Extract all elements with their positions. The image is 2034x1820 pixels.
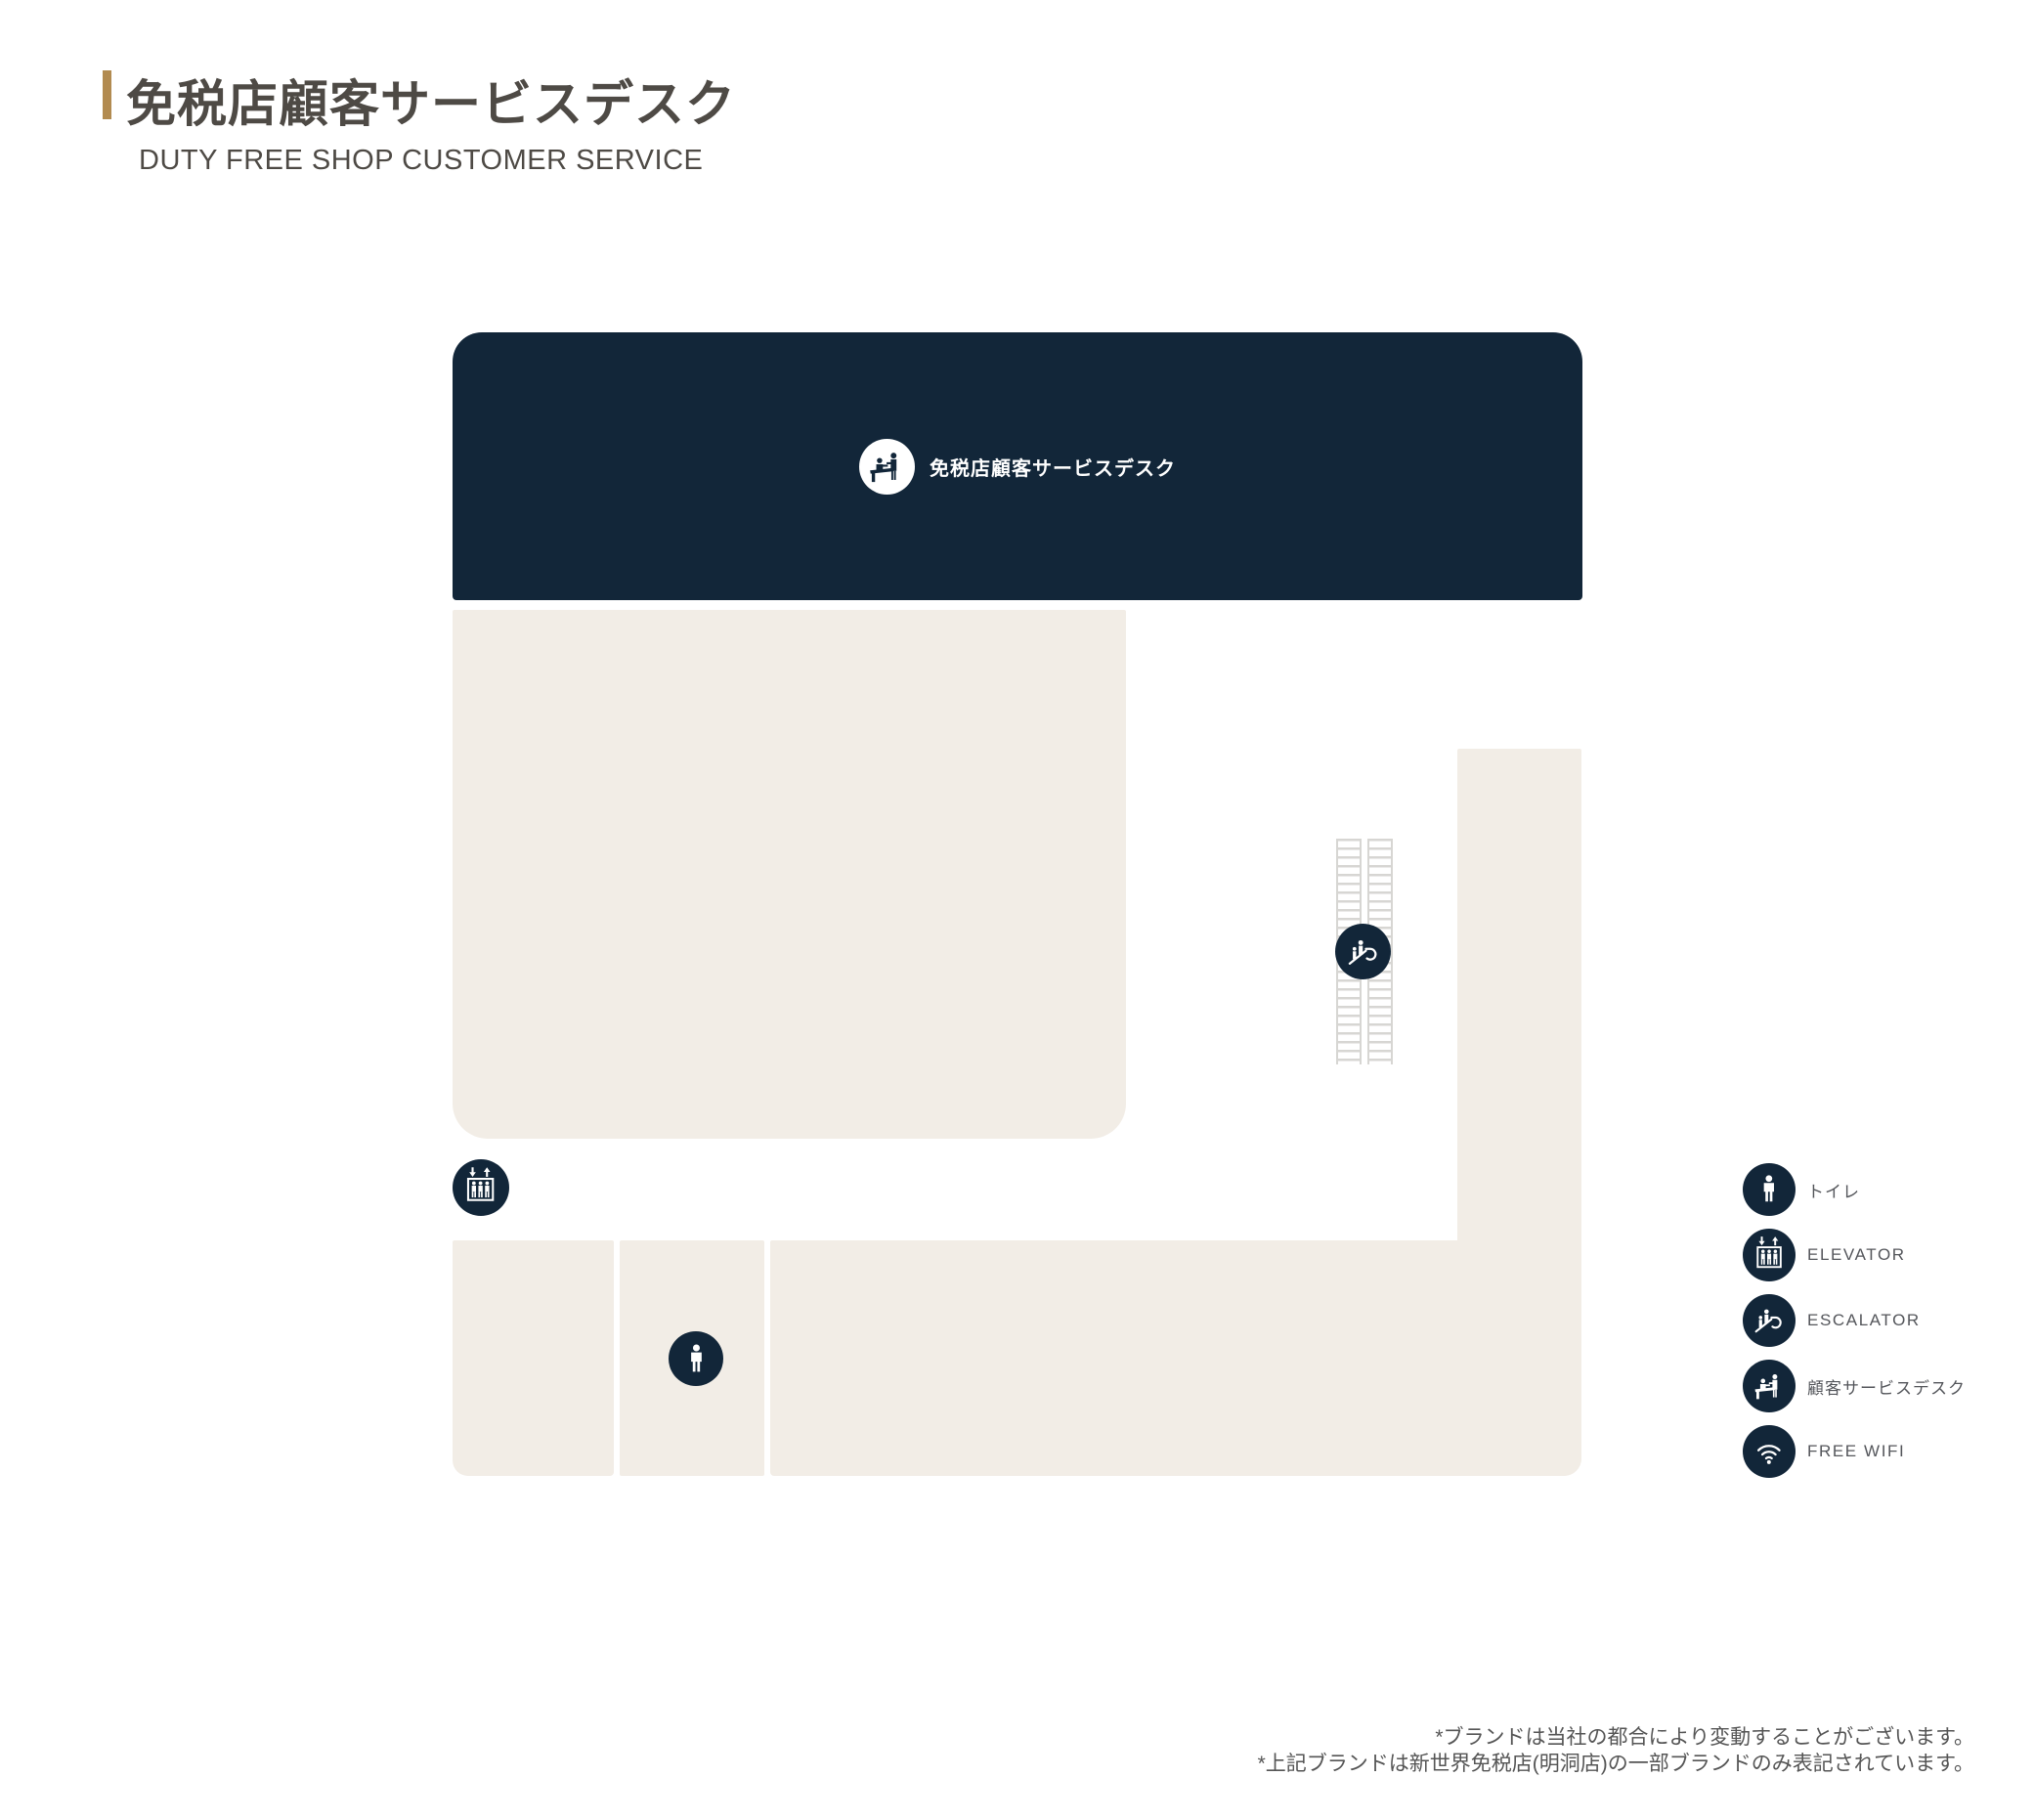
legend-service-desk-label: 顧客サービスデスク xyxy=(1807,1374,1966,1399)
legend-toilet-badge xyxy=(1743,1163,1796,1216)
page-title: 免税店顧客サービスデスク xyxy=(126,74,736,134)
legend-wifi-label: FREE WIFI xyxy=(1807,1442,1905,1461)
service-desk-badge xyxy=(859,439,915,495)
legend-service-desk-badge xyxy=(1743,1360,1796,1412)
page-subtitle: DUTY FREE SHOP CUSTOMER SERVICE xyxy=(139,145,703,177)
map-escalator-marker xyxy=(1335,924,1391,979)
service-desk-banner: 免税店顧客サービスデスク xyxy=(453,332,1582,600)
legend-item-elevator: ELEVATOR xyxy=(1743,1229,1966,1281)
legend-item-toilet: トイレ xyxy=(1743,1163,1966,1216)
title-accent-bar xyxy=(103,70,111,119)
service-desk-banner-label: 免税店顧客サービスデスク xyxy=(930,453,1176,481)
map-toilet-marker xyxy=(669,1331,723,1386)
legend-elevator-label: ELEVATOR xyxy=(1807,1245,1906,1265)
legend-escalator-badge xyxy=(1743,1294,1796,1347)
legend-item-escalator: ESCALATOR xyxy=(1743,1294,1966,1347)
footnotes: *ブランドは当社の都合により変動することがございます。 *上記ブランドは新世界免… xyxy=(1258,1724,1974,1778)
escalator-icon xyxy=(1752,1303,1787,1338)
room-block-1 xyxy=(453,1240,614,1476)
service-desk-icon xyxy=(1752,1368,1787,1404)
legend-elevator-badge xyxy=(1743,1229,1796,1281)
footnote-line-2: *上記ブランドは新世界免税店(明洞店)の一部ブランドのみ表記されています。 xyxy=(1258,1751,1974,1777)
toilet-icon xyxy=(678,1341,714,1377)
escalator-icon xyxy=(1345,933,1382,971)
legend-escalator-label: ESCALATOR xyxy=(1807,1311,1921,1330)
toilet-icon xyxy=(1752,1172,1787,1207)
legend-wifi-badge xyxy=(1743,1425,1796,1478)
shop-floor-area xyxy=(453,610,1126,1139)
legend-item-service-desk: 顧客サービスデスク xyxy=(1743,1360,1966,1412)
map-legend: トイレ ELEVATOR ESCALATOR 顧客サービスデスク FREE WI… xyxy=(1743,1163,1966,1478)
footnote-line-1: *ブランドは当社の都合により変動することがございます。 xyxy=(1258,1724,1974,1751)
legend-toilet-label: トイレ xyxy=(1807,1178,1860,1202)
elevator-icon xyxy=(458,1165,502,1209)
map-elevator-marker xyxy=(453,1159,509,1216)
wifi-icon xyxy=(1752,1434,1787,1469)
duty-free-floor-map-page: 免税店顧客サービスデスク DUTY FREE SHOP CUSTOMER SER… xyxy=(0,0,2034,1820)
corridor-bottom-area xyxy=(770,1240,1581,1476)
legend-item-free-wifi: FREE WIFI xyxy=(1743,1425,1966,1478)
service-desk-icon xyxy=(866,446,907,487)
elevator-icon xyxy=(1749,1235,1790,1276)
